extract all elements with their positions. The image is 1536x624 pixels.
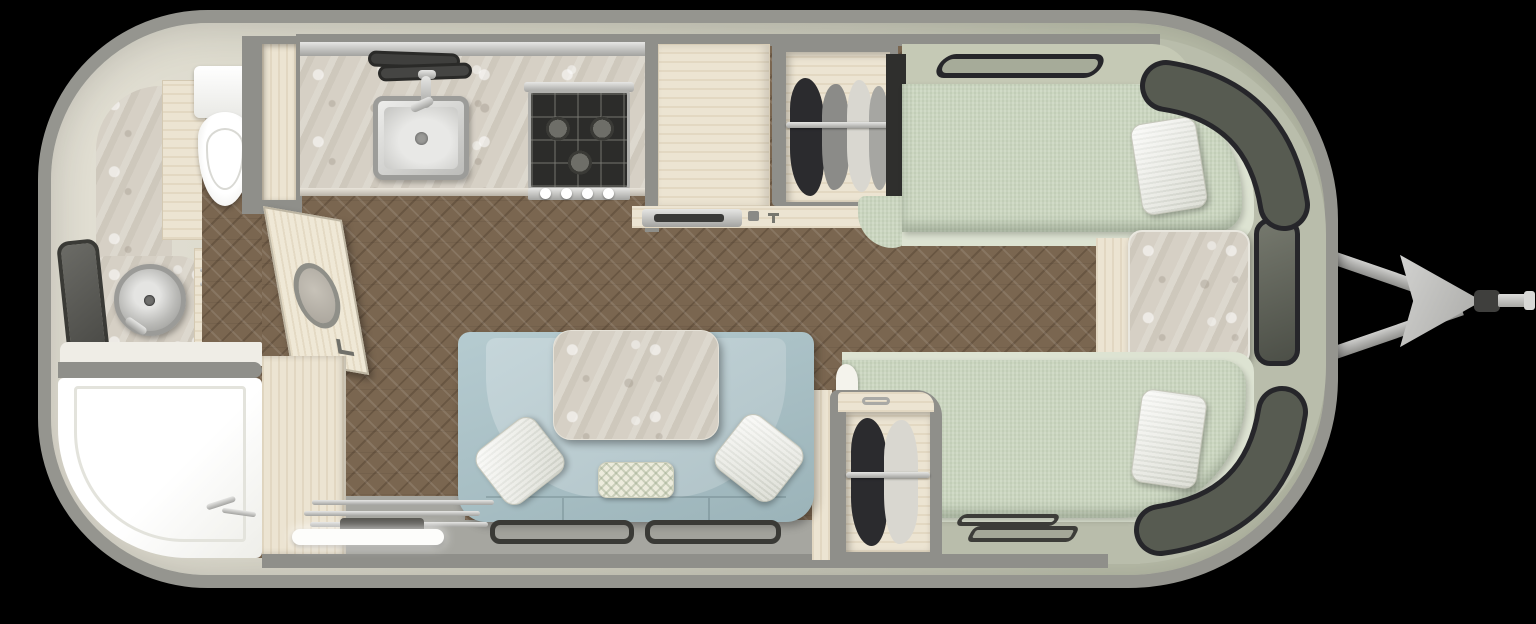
cooktop-knob-4 [603,188,614,199]
entry-grab-handle [292,529,444,545]
fridge-vent-slot [654,214,724,222]
hanging-clothes-dark [790,78,824,196]
floor-mat-1 [955,514,1061,526]
wall-nook [262,44,296,200]
bed-end-panel [812,390,832,560]
cooktop-knob-3 [582,188,593,199]
bottom-wall [262,554,1108,568]
hitch-coupler [1474,290,1500,312]
floor-plan-canvas [0,0,1536,624]
curbside-window-1 [490,520,634,544]
bath-sink-drain [144,295,155,306]
gas-cooktop [528,90,630,190]
t-handle-stem [772,213,775,223]
step-rail-2 [304,511,480,516]
closet-rod-2 [846,472,930,478]
kitchen-sink-drain [415,132,428,145]
hanging-clothes-cream-2 [884,420,918,544]
shower-wall [58,362,262,378]
hanging-clothes-gray [822,84,849,190]
bed-window [932,54,1109,78]
sofa-seam-v1 [562,498,564,520]
fridge-cabinet [658,44,770,208]
curbside-window-2 [645,520,781,544]
galley-end-wall [645,36,659,232]
front-wraparound-windows [1100,40,1326,570]
dinette-table [553,330,719,440]
hitch-plate [1400,253,1482,349]
kitchen-backsplash [300,42,656,56]
floor-mat-2 [966,526,1081,542]
closet-rod [786,122,890,128]
sofa-seam-v2 [708,498,710,520]
vent-square [748,211,759,221]
cooktop-knob-2 [561,188,572,199]
step-rail-1 [312,500,494,505]
hanging-clothes-dark-2 [851,418,887,546]
hitch-tongue-cap [1524,291,1535,310]
wardrobe-handle [862,397,890,405]
sofa-pillow-center [598,462,674,498]
door-handle [336,339,354,356]
door-oval-window [289,259,346,332]
cooktop-knob-1 [540,188,551,199]
